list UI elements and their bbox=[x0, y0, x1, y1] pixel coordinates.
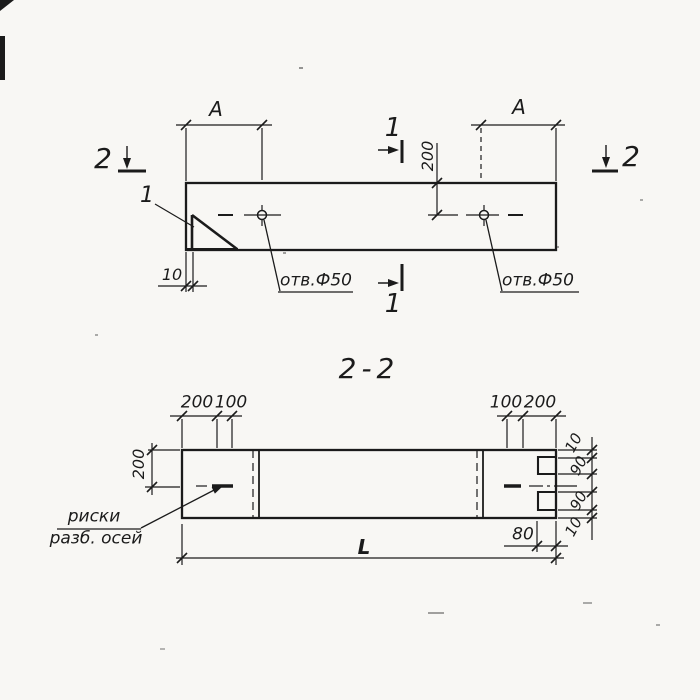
drawing-linework bbox=[0, 0, 700, 700]
dim-label-200-top-right: 200 bbox=[524, 395, 556, 412]
section-mark-2-left bbox=[118, 146, 146, 171]
corner-detail-triangle bbox=[192, 215, 237, 249]
section-beam-outline bbox=[182, 450, 556, 518]
cut-label-1-bottom: 1 bbox=[385, 291, 402, 317]
joint-lines-right bbox=[477, 450, 483, 518]
section-mark-1-top bbox=[378, 140, 402, 163]
dim-label-200-top-left: 200 bbox=[181, 395, 213, 412]
cut-label-2-left: 2 bbox=[94, 145, 112, 173]
detail-label-1: 1 bbox=[140, 185, 154, 207]
dim-label-100-top-left: 100 bbox=[215, 395, 247, 412]
dim-label-200-height: 200 bbox=[131, 449, 147, 480]
joint-lines-left bbox=[253, 450, 259, 518]
blueprint-canvas: A A 2 2 1 1 1 200 10 отв.Ф50 отв.Ф50 2-2… bbox=[0, 0, 700, 700]
hole-callout-left: отв.Ф50 bbox=[280, 273, 352, 290]
dim-label-a-right: A bbox=[512, 97, 526, 117]
cut-label-2-right: 2 bbox=[622, 143, 640, 171]
dim-label-a-left: A bbox=[209, 99, 223, 119]
section-title: 2-2 bbox=[339, 355, 400, 383]
dim-label-100-top-right: 100 bbox=[490, 395, 522, 412]
plan-beam-outline bbox=[186, 183, 556, 250]
dim-label-80: 80 bbox=[512, 527, 534, 544]
dim-height-left bbox=[145, 443, 180, 495]
axis-note-line2: разб. осей bbox=[50, 531, 143, 548]
scan-artifacts bbox=[0, 0, 660, 650]
dim-top-left bbox=[170, 411, 242, 448]
plan-view bbox=[118, 120, 618, 292]
dim-label-10-plan: 10 bbox=[162, 267, 182, 283]
dim-top-right bbox=[497, 411, 566, 448]
section-mark-1-bottom bbox=[378, 264, 402, 291]
scan-corner-mark bbox=[0, 0, 14, 11]
hole-right bbox=[428, 205, 523, 226]
dim-label-200-plan: 200 bbox=[420, 141, 436, 172]
scan-edge-mark bbox=[0, 36, 5, 80]
dim-label-length: L bbox=[358, 537, 371, 557]
cut-label-1-top: 1 bbox=[385, 115, 402, 141]
dim-a-right bbox=[471, 120, 565, 181]
end-notches bbox=[538, 457, 556, 510]
section-mark-2-right bbox=[592, 145, 618, 171]
detail-leader-line bbox=[155, 204, 194, 227]
axis-note-line1: риски bbox=[68, 509, 121, 526]
hole-left bbox=[218, 205, 281, 226]
dim-a-left bbox=[176, 120, 272, 181]
hole-callout-right: отв.Ф50 bbox=[502, 273, 574, 290]
